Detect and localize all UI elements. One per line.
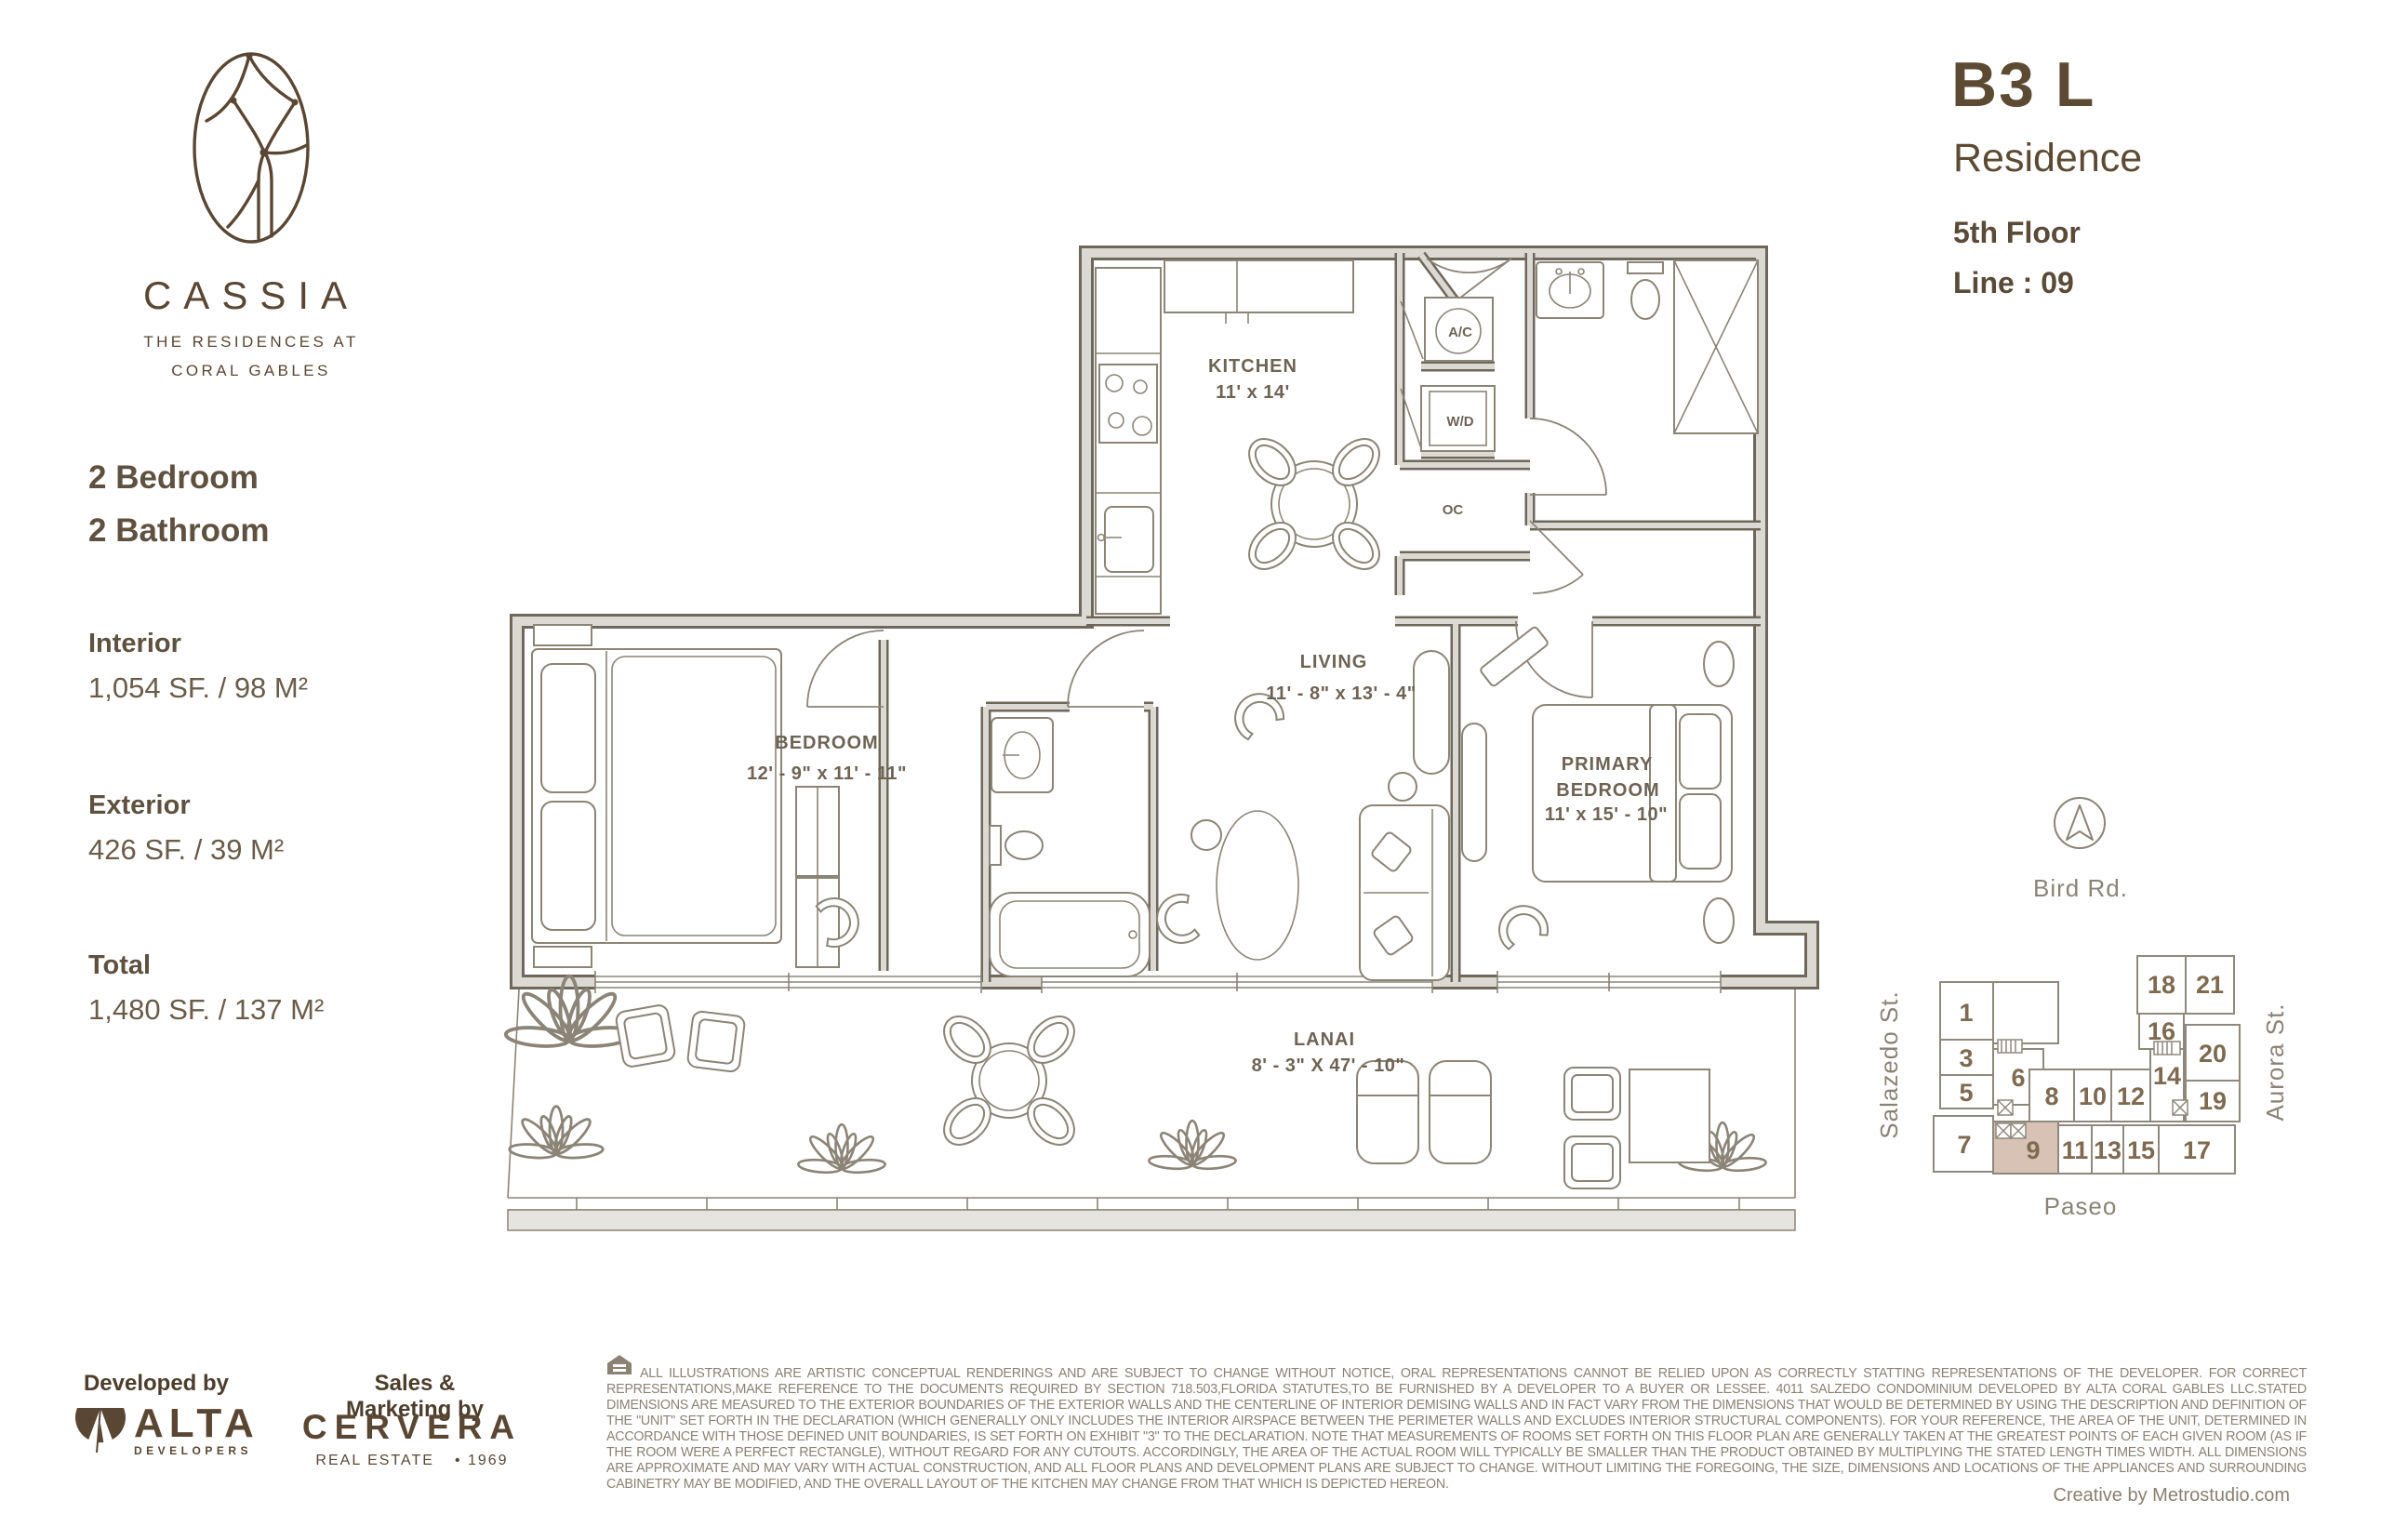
cervera-logo: CERVERA REAL ESTATE • 1969 (285, 1408, 539, 1469)
compass-icon (2055, 798, 2105, 848)
unit-type-label: Residence (1953, 136, 2142, 181)
cervera-year: • 1969 (455, 1453, 509, 1469)
cervera-subtitle: REAL ESTATE (315, 1453, 434, 1469)
bedroom-label: BEDROOM (775, 733, 878, 753)
keyplan-unit-8: 8 (2044, 1082, 2058, 1110)
console (1414, 651, 1449, 774)
keyplan-unit-16: 16 (2148, 1017, 2175, 1045)
street-left-label: Salazedo St. (1875, 990, 1903, 1138)
kitchen-dims: 11' x 14' (1216, 382, 1290, 403)
toilet2 (1005, 831, 1043, 859)
wd-label: W/D (1446, 414, 1473, 430)
primary-dims: 11' x 15' - 10" (1545, 804, 1668, 825)
unit-line: Line : 09 (1953, 266, 2074, 300)
cervera-name: CERVERA (285, 1408, 539, 1447)
north-road-label: Bird Rd. (2033, 874, 2128, 902)
interior-label: Interior (88, 629, 181, 659)
keyplan-unit-19: 19 (2199, 1087, 2227, 1115)
stove (1099, 365, 1157, 443)
lanai-dims: 8' - 3" X 47' - 10" (1252, 1055, 1405, 1076)
keyplan-unit-20: 20 (2199, 1040, 2227, 1068)
bedroom-count: 2 Bedroom (88, 459, 259, 497)
keyplan-unit-15: 15 (2127, 1136, 2155, 1164)
keyplan-unit-12: 12 (2117, 1082, 2145, 1110)
living-dims: 11' - 8" x 13' - 4" (1266, 684, 1416, 704)
keyplan-unit-17: 17 (2183, 1136, 2211, 1164)
promenade-label: Paseo (2044, 1192, 2118, 1220)
brand-tagline-line1: THE RESIDENCES AT (65, 327, 437, 356)
street-right-label: Aurora St. (2261, 1002, 2289, 1121)
alta-name: ALTA (134, 1405, 259, 1442)
location-key: Bird Rd. (1860, 781, 2344, 1228)
total-area: 1,480 SF. / 137 M² (88, 993, 324, 1027)
unit-model: B3 L (1951, 48, 2095, 121)
bathtub (990, 893, 1150, 976)
toilet-tank (1628, 262, 1663, 273)
living-label: LIVING (1300, 652, 1368, 672)
keyplan-unit-18: 18 (2148, 971, 2175, 999)
floorplan-sheet: CASSIA THE RESIDENCES AT CORAL GABLES 2 … (0, 0, 2381, 1540)
kitchen-label: KITCHEN (1208, 356, 1297, 377)
keyplan-unit-7: 7 (1957, 1131, 1971, 1159)
primary-label-line2: BEDROOM (1556, 780, 1659, 801)
ac-label: A/C (1448, 325, 1472, 340)
alta-subtitle: DEVELOPERS (134, 1444, 259, 1457)
legal-disclaimer: ALL ILLUSTRATIONS ARE ARTISTIC CONCEPTUA… (606, 1366, 2307, 1493)
bathroom-2-fixtures (990, 718, 1150, 976)
interior-area: 1,054 SF. / 98 M² (88, 671, 308, 705)
slider-doors (595, 971, 1721, 993)
bathroom-1-fixtures (1536, 260, 1758, 433)
kitchen-fixtures (1096, 260, 1389, 614)
bath2-vanity (991, 718, 1053, 792)
unit-floor: 5th Floor (1953, 216, 2081, 250)
primary-label-line1: PRIMARY (1562, 754, 1653, 775)
keyplan-unit-13: 13 (2094, 1136, 2122, 1164)
developed-by-label: Developed by (73, 1371, 240, 1397)
lanai-planter (508, 1210, 1795, 1230)
credit-line: Creative by Metrostudio.com (1953, 1485, 2290, 1507)
exterior-area: 426 SF. / 39 M² (88, 833, 284, 867)
toilet (1631, 280, 1659, 319)
oc-label: OC (1443, 502, 1464, 518)
lanai-furniture (505, 976, 1766, 1188)
keyplan-unit-5: 5 (1959, 1079, 1973, 1107)
bathroom-count: 2 Bathroom (88, 512, 269, 550)
rug (1217, 811, 1298, 960)
kitchen-sink (1105, 507, 1153, 572)
exterior-label: Exterior (88, 790, 191, 821)
bedroom-dims: 12' - 9" x 11' - 11" (747, 763, 907, 784)
keyplan-unit-1: 1 (1959, 999, 1973, 1027)
keyplan-unit-6: 6 (2011, 1064, 2025, 1092)
keyplan-unit-14: 14 (2153, 1062, 2181, 1090)
brand-name: CASSIA (65, 273, 437, 318)
brand-tagline: THE RESIDENCES AT CORAL GABLES (65, 327, 437, 385)
cassia-logo-icon (191, 33, 312, 262)
keyplan-unit-10: 10 (2079, 1082, 2107, 1110)
floor-plan-drawing: KITCHEN 11' x 14' A/C W/D OC BEDROOM 12'… (502, 232, 1823, 1251)
brand-tagline-line2: CORAL GABLES (65, 356, 437, 385)
keyplan-unit-9: 9 (2026, 1136, 2040, 1164)
keyplan-unit-11: 11 (2062, 1136, 2089, 1164)
total-label: Total (88, 950, 151, 981)
keyplan-unit-21: 21 (2196, 971, 2224, 999)
upper-cabinets (1164, 260, 1353, 312)
lanai-label: LANAI (1294, 1029, 1355, 1050)
keyplan-unit-3: 3 (1959, 1044, 1973, 1072)
alta-mark-icon (74, 1404, 126, 1458)
key-plan: 1 3 5 7 6 8 10 12 14 16 18 21 20 19 9 11… (1875, 956, 2289, 1220)
toilet2-tank (990, 826, 1001, 865)
alta-logo: ALTA DEVELOPERS (74, 1404, 259, 1458)
